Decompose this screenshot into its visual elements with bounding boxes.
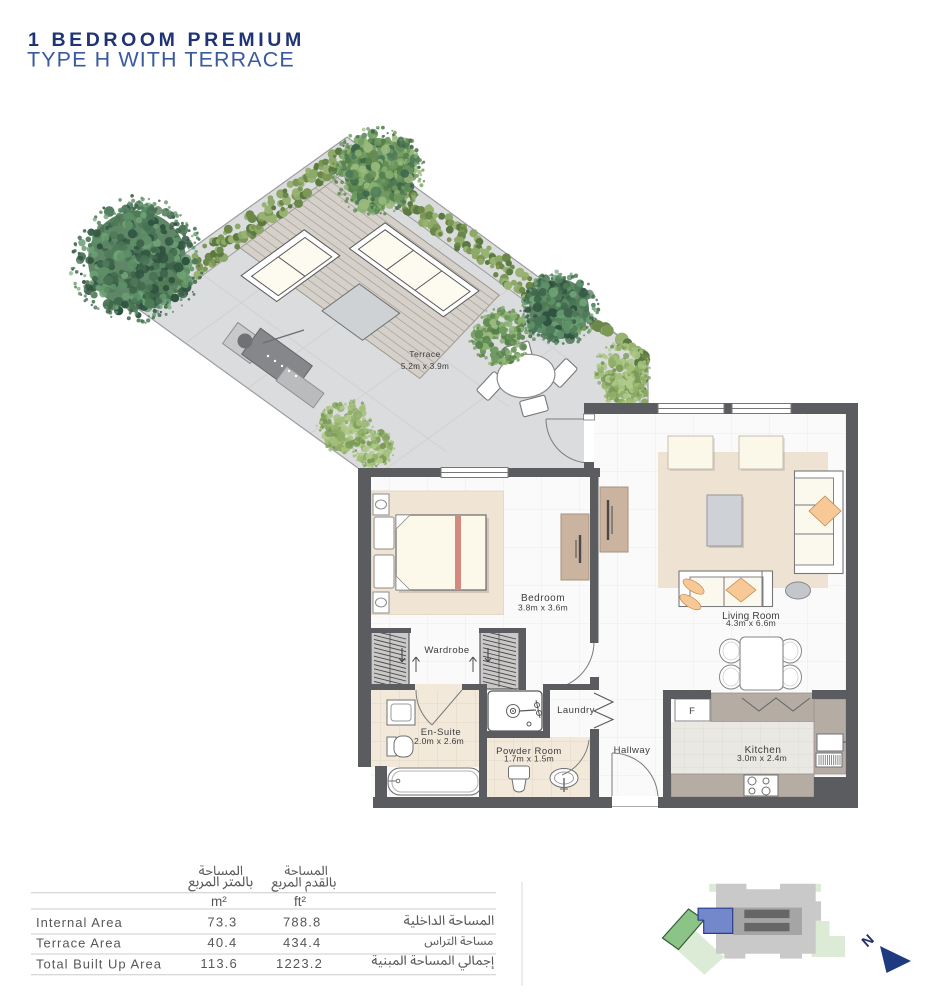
svg-text:73.3: 73.3 [207,914,237,929]
svg-text:1.7m x 1.5m: 1.7m x 1.5m [504,754,554,764]
svg-text:40.4: 40.4 [207,935,237,950]
svg-text:788.8: 788.8 [283,914,322,929]
svg-text:Internal Area: Internal Area [36,915,123,930]
svg-text:Terrace: Terrace [409,349,440,359]
svg-text:113.6: 113.6 [200,956,238,971]
svg-text:Wardrobe: Wardrobe [424,645,469,656]
svg-text:3.8m x 3.6m: 3.8m x 3.6m [518,603,568,613]
svg-text:Laundry: Laundry [557,705,595,716]
svg-text:Total Built Up Area: Total Built Up Area [36,957,162,972]
svg-text:2.0m x 2.6m: 2.0m x 2.6m [414,736,464,746]
svg-text:Hallway: Hallway [614,745,651,756]
svg-text:4.3m x 6.6m: 4.3m x 6.6m [726,618,776,628]
svg-text:ft²: ft² [294,894,307,909]
svg-text:5.2m x 3.9m: 5.2m x 3.9m [401,362,449,371]
svg-text:1223.2: 1223.2 [276,956,323,971]
svg-text:F: F [689,706,695,717]
svg-text:TYPE H WITH TERRACE: TYPE H WITH TERRACE [27,48,295,72]
svg-text:434.4: 434.4 [283,935,322,950]
svg-text:Terrace Area: Terrace Area [36,936,122,951]
svg-text:m²: m² [211,894,227,909]
svg-text:3.0m x 2.4m: 3.0m x 2.4m [737,753,787,763]
